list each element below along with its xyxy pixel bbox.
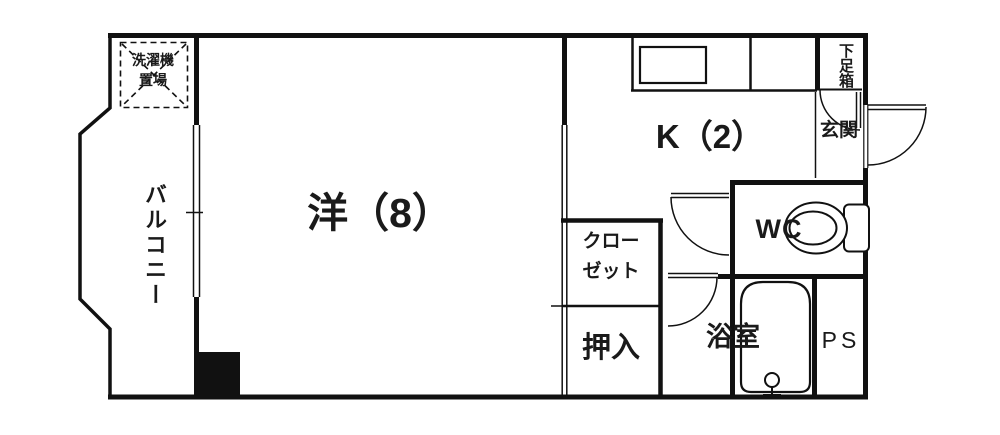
kitchen-sink <box>640 47 706 83</box>
room-label-shoe-box: 下足箱 <box>828 36 854 94</box>
room-label-oshiire: 押入 <box>564 331 658 366</box>
room-label-pipe-space: PS <box>816 327 866 355</box>
floor-plan: 洋（8） K（2） バルコニー 洗濯機 置場 クロー ゼット 押入 浴室 WC … <box>0 0 1000 435</box>
room-label-closet: クロー ゼット <box>564 227 658 288</box>
room-kitchen-opening <box>562 125 567 219</box>
bathroom-door <box>668 274 718 327</box>
front-door <box>864 105 926 168</box>
room-label-toilet: WC <box>746 213 812 245</box>
kitchen-counter <box>631 37 817 91</box>
room-label-kitchen: K（2） <box>620 117 800 157</box>
pillar <box>198 352 240 397</box>
balcony-window <box>186 125 203 297</box>
wc-door <box>671 194 729 256</box>
room-label-western-room: 洋（8） <box>250 189 510 238</box>
room-label-washer-area: 洗濯機 置場 <box>116 50 190 91</box>
room-label-entrance: 玄関 <box>814 120 864 143</box>
room-label-balcony: バルコニー <box>133 158 167 333</box>
room-label-bathroom: 浴室 <box>696 321 770 353</box>
balcony-outline <box>80 37 110 396</box>
